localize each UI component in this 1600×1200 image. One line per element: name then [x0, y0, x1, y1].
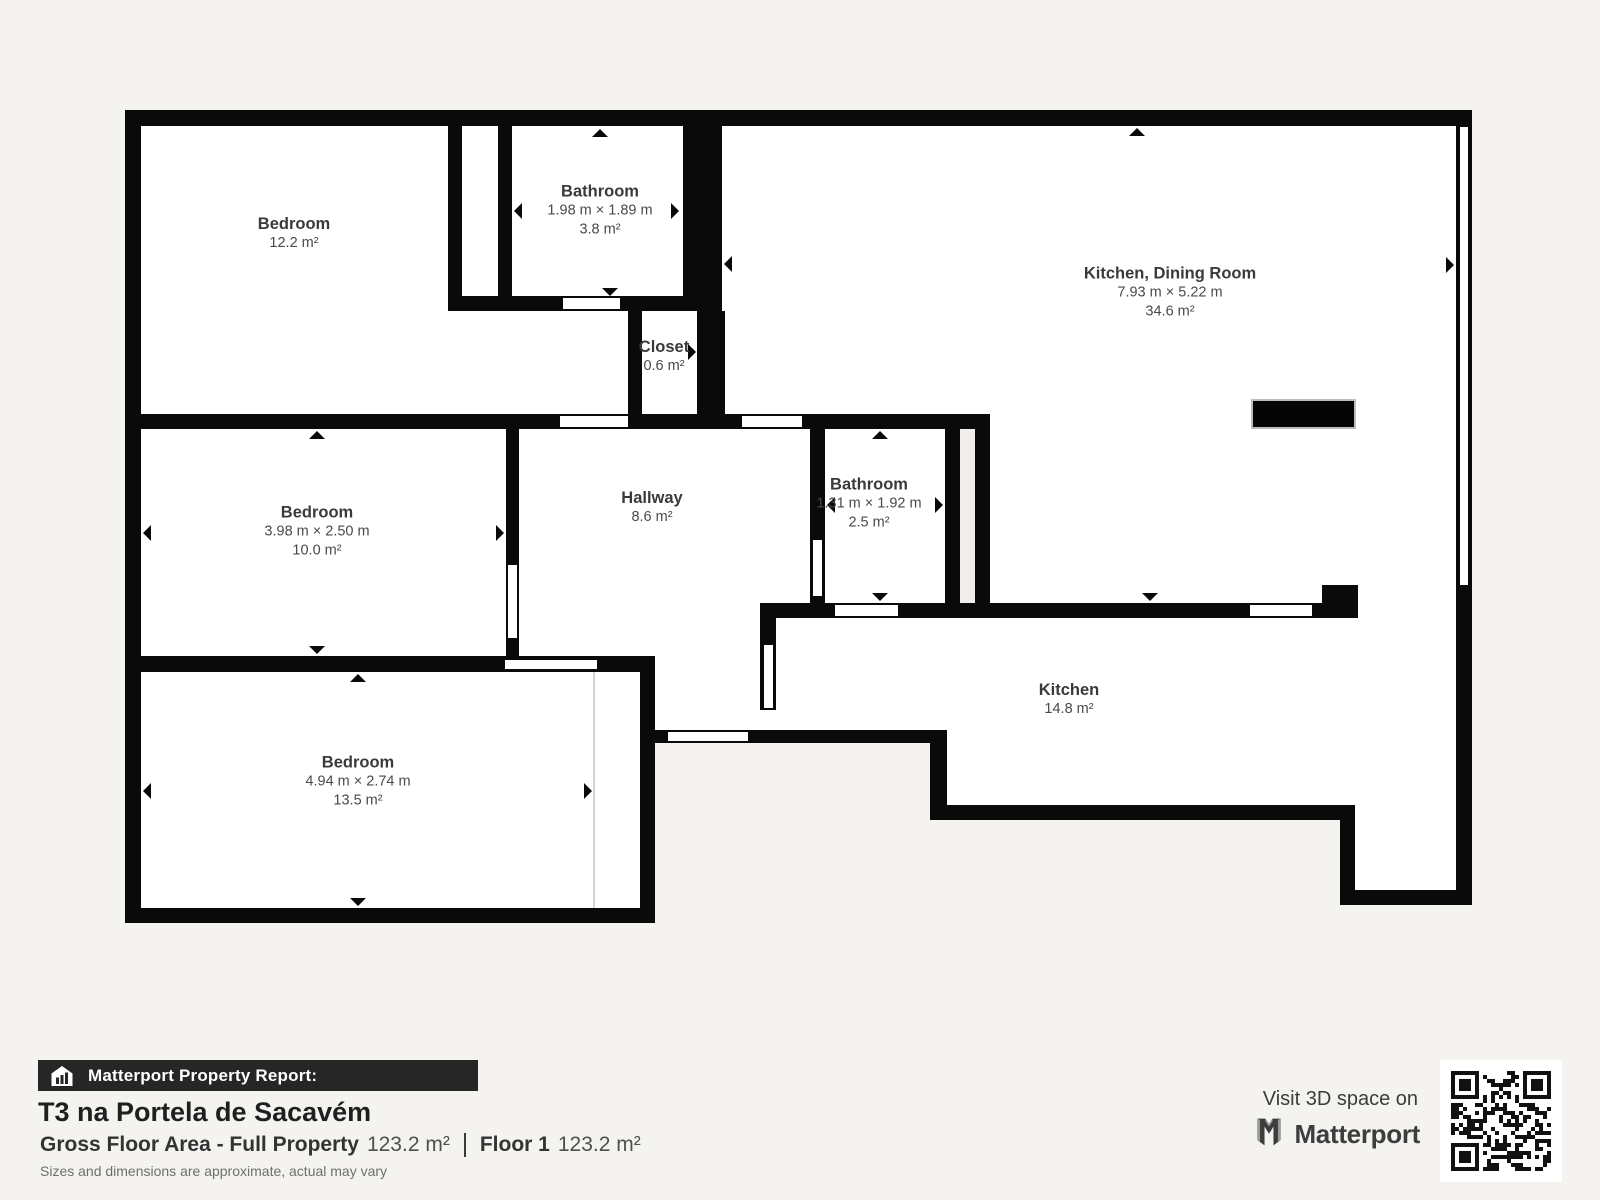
report-bar-label: Matterport Property Report:	[88, 1066, 317, 1086]
window-strip	[1460, 127, 1468, 585]
gross-area-value: 123.2 m²	[367, 1133, 450, 1157]
matterport-wordmark: Matterport	[1294, 1119, 1420, 1150]
gross-area-label: Gross Floor Area - Full Property	[40, 1133, 359, 1157]
floor-area-stats: Gross Floor Area - Full Property 123.2 m…	[40, 1133, 641, 1157]
floor-plan	[0, 0, 1600, 1200]
property-title: T3 na Portela de Sacavém	[38, 1097, 371, 1128]
matterport-logo-icon	[1253, 1115, 1285, 1154]
disclaimer-text: Sizes and dimensions are approximate, ac…	[40, 1163, 387, 1179]
shaft	[960, 429, 975, 603]
visit-3d-text: Visit 3D space on	[1253, 1088, 1418, 1111]
qr-code	[1440, 1060, 1562, 1182]
matterport-promo: Visit 3D space on Matterport	[1253, 1088, 1420, 1154]
property-report-icon	[50, 1064, 74, 1088]
room-floors	[125, 110, 1472, 923]
floor-label: Floor 1	[480, 1133, 550, 1157]
floor-value: 123.2 m²	[558, 1133, 641, 1157]
stats-divider	[464, 1133, 466, 1157]
report-header-bar: Matterport Property Report:	[38, 1060, 478, 1091]
kitchen-counter	[1252, 400, 1355, 428]
